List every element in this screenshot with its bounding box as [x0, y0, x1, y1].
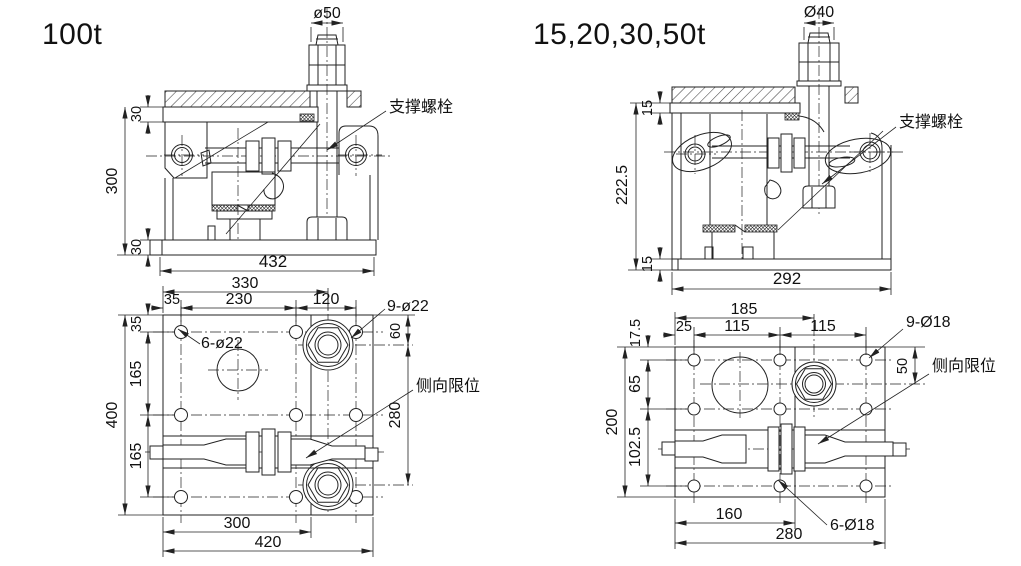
label-6-holes: 6-ø22	[201, 335, 243, 352]
pivot-links	[667, 113, 894, 259]
figure-title-15-50t: 15,20,30,50t	[533, 18, 706, 51]
dim-width: 432	[259, 252, 287, 271]
dim-height: 222.5	[614, 165, 631, 205]
label-side-limit: 侧向限位	[416, 377, 480, 395]
dim-height: 300	[104, 168, 121, 195]
upper-mounting-plate	[670, 103, 800, 113]
cable-gland	[785, 113, 799, 120]
dim-35v: 35	[129, 316, 145, 332]
ceiling-hatch-right	[845, 87, 858, 103]
label-6-holes: 6-Ø18	[830, 517, 875, 534]
dim-60: 60	[388, 323, 404, 339]
dim-300: 300	[224, 515, 251, 532]
dim-165a: 165	[128, 361, 145, 388]
dim-115a: 115	[724, 318, 750, 335]
dim-top-plate: 30	[129, 106, 145, 122]
dim-bottom-plate: 15	[640, 256, 656, 272]
support-bolt-hex	[792, 362, 836, 406]
side-limit-rod	[658, 424, 910, 474]
support-bolt-hex-top	[303, 320, 353, 370]
side-limit-rod	[145, 429, 385, 475]
figure-15-50t: 15,20,30,50t	[533, 4, 996, 549]
dim-420: 420	[255, 534, 282, 551]
dim-25: 25	[676, 319, 692, 335]
support-bolt-top	[307, 8, 347, 243]
centerlines	[153, 295, 413, 523]
dim-400: 400	[104, 402, 121, 429]
dim-185: 185	[731, 301, 758, 318]
ceiling-hatch-left	[165, 91, 310, 107]
dim-bolt-dia: ø50	[313, 5, 341, 22]
dim-width: 292	[773, 269, 801, 288]
elevation-view-100t: ø50 30 300 30 432 支撑螺栓	[104, 5, 453, 276]
dim-280: 280	[776, 526, 803, 543]
dim-50: 50	[895, 358, 911, 374]
label-support-bolt: 支撑螺栓	[389, 98, 453, 116]
rod-and-clamps	[664, 134, 905, 172]
label-9-holes: 9-Ø18	[906, 314, 951, 331]
dim-330: 330	[232, 275, 259, 292]
ceiling-hatch-left	[672, 87, 795, 103]
dim-top-plate: 15	[640, 100, 656, 116]
dim-200: 200	[604, 409, 621, 436]
ceiling-hatch-right	[347, 91, 361, 107]
plan-view-100t: 330 35 230 120 9-ø22 35 165 400 165	[104, 275, 480, 557]
label-9-holes: 9-ø22	[387, 298, 429, 315]
plan-dimensions-15-50t: 185 25 115 115 9-Ø18 17.5 65 200 102.5	[604, 301, 996, 549]
dim-17-5: 17.5	[628, 319, 644, 347]
cable-gland	[300, 114, 314, 121]
label-side-limit: 侧向限位	[932, 357, 996, 375]
cable-curve	[799, 116, 824, 132]
dim-160: 160	[716, 506, 743, 523]
dim-230: 230	[226, 291, 253, 308]
technical-drawing-canvas: 100t	[0, 0, 1021, 566]
figure-100t: 100t	[42, 5, 480, 557]
dim-bottom-plate: 30	[129, 239, 145, 255]
dim-35h: 35	[164, 292, 180, 308]
dim-102-5: 102.5	[627, 427, 644, 467]
dim-bolt-dia: Ø40	[804, 4, 834, 21]
load-cell-body	[703, 110, 781, 265]
label-support-bolt: 支撑螺栓	[899, 113, 963, 131]
rod-and-clamps	[146, 138, 392, 174]
plan-view-15-50t: 185 25 115 115 9-Ø18 17.5 65 200 102.5	[604, 301, 996, 549]
dim-65: 65	[627, 375, 644, 393]
dim-165b: 165	[128, 443, 145, 470]
figure-title-100t: 100t	[42, 18, 103, 51]
upper-mounting-plate	[163, 107, 318, 122]
dim-280: 280	[387, 402, 404, 429]
dim-120: 120	[313, 291, 340, 308]
load-cell-mount-drawing: 100t	[0, 0, 1021, 566]
dim-115b: 115	[810, 318, 836, 335]
